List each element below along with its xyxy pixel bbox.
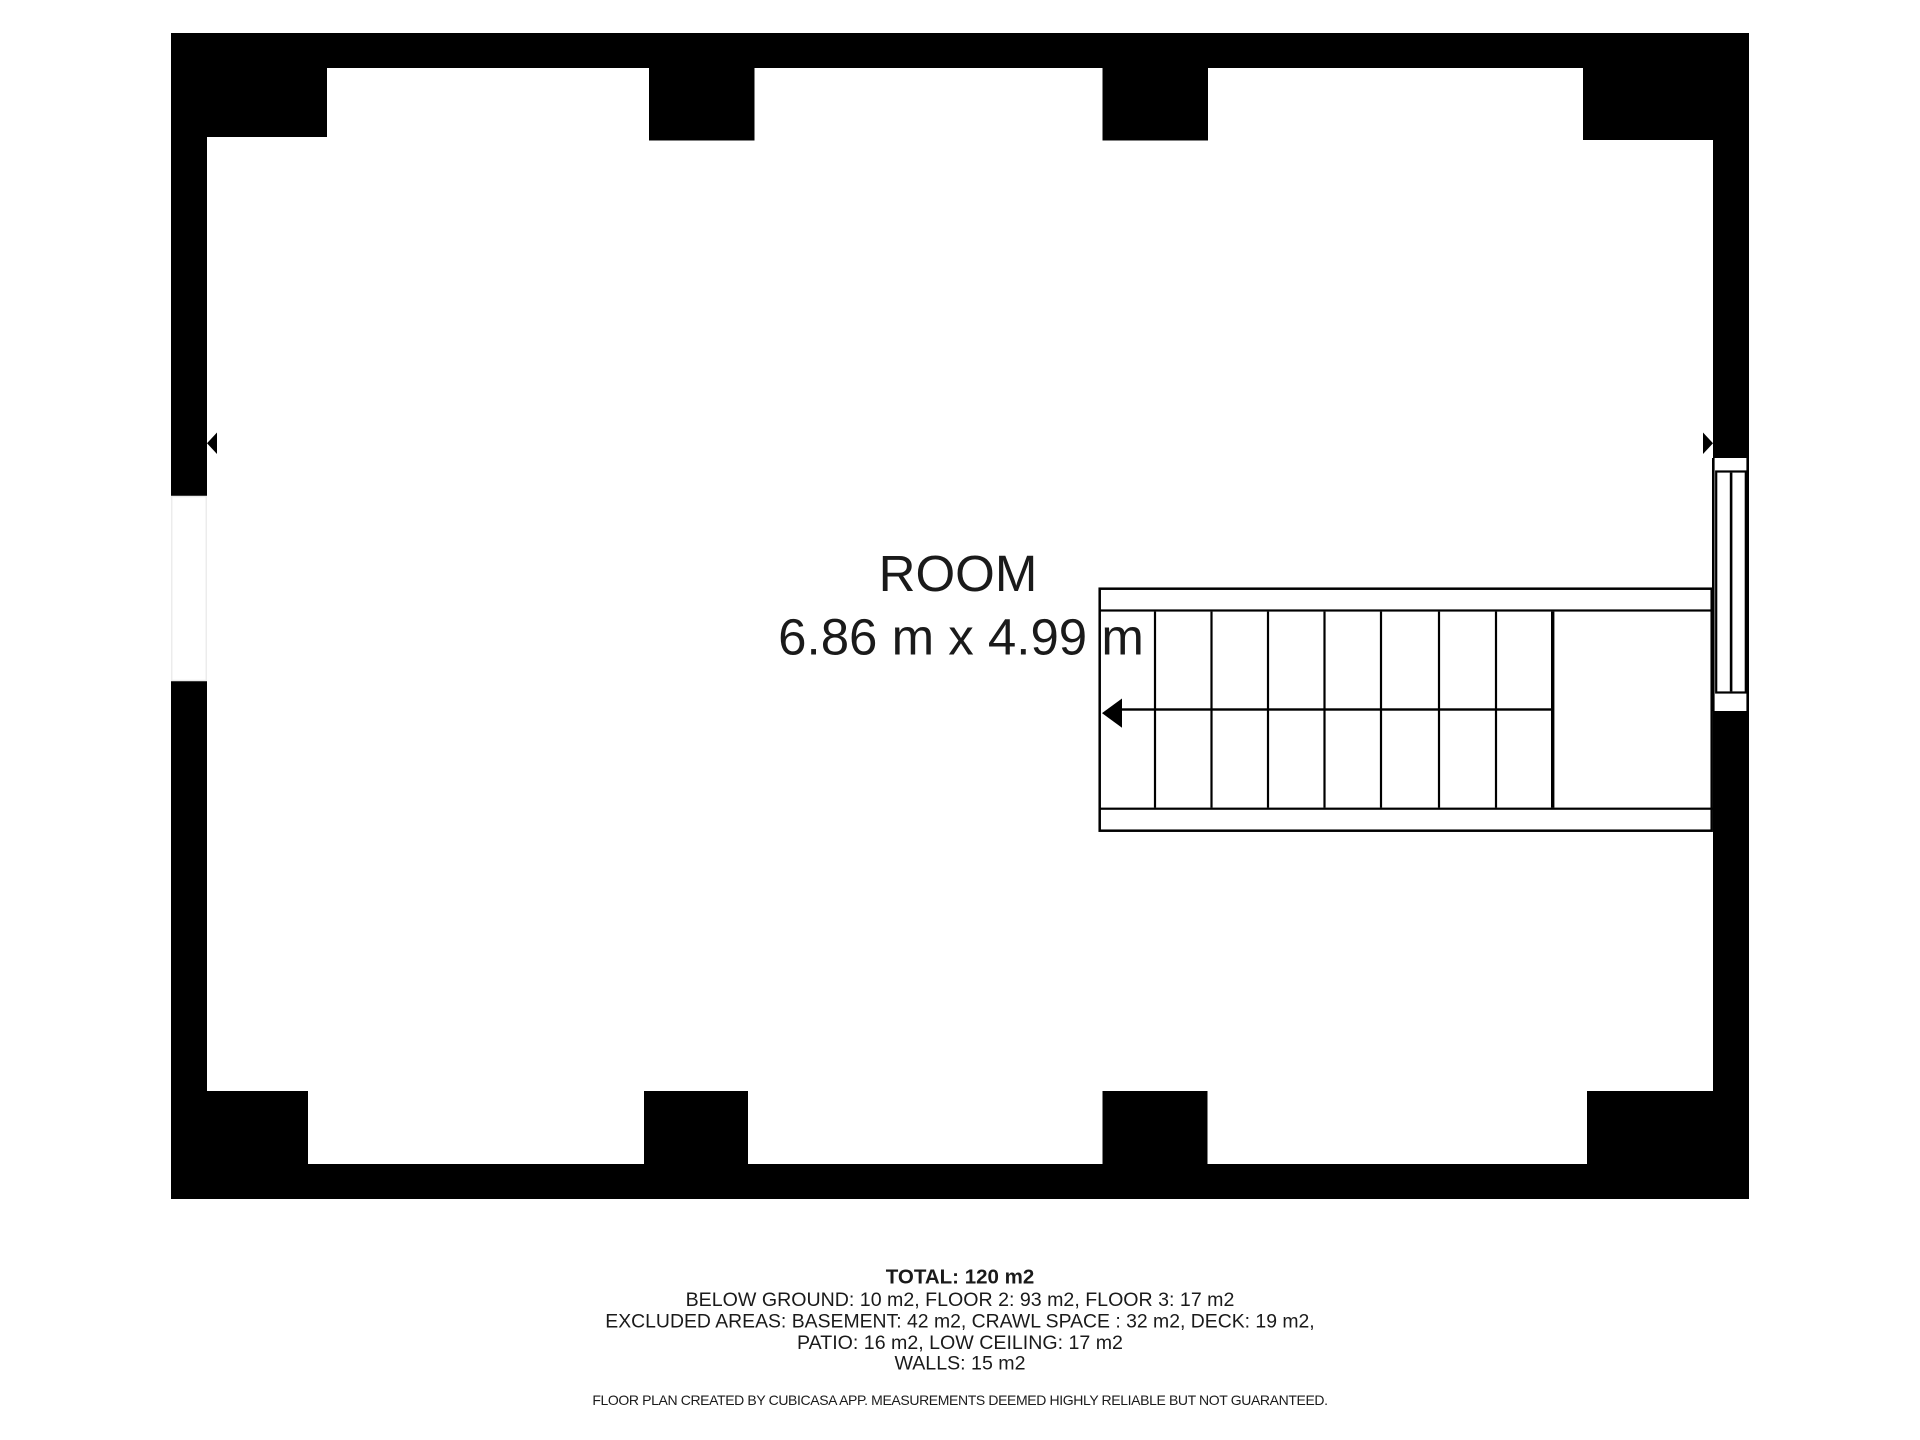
svg-text:TOTAL: 120 m2: TOTAL: 120 m2 bbox=[886, 1265, 1034, 1288]
svg-text:PATIO: 16 m2, LOW CEILING: 17: PATIO: 16 m2, LOW CEILING: 17 m2 bbox=[797, 1332, 1123, 1354]
svg-text:WALLS: 15 m2: WALLS: 15 m2 bbox=[894, 1353, 1025, 1375]
svg-text:FLOOR PLAN CREATED BY CUBICASA: FLOOR PLAN CREATED BY CUBICASA APP. MEAS… bbox=[592, 1392, 1327, 1408]
svg-text:6.86 m x 4.99 m: 6.86 m x 4.99 m bbox=[778, 609, 1144, 666]
svg-text:BELOW GROUND: 10 m2, FLOOR 2:: BELOW GROUND: 10 m2, FLOOR 2: 93 m2, FLO… bbox=[686, 1289, 1235, 1311]
svg-text:EXCLUDED AREAS: BASEMENT: 42 m: EXCLUDED AREAS: BASEMENT: 42 m2, CRAWL S… bbox=[605, 1311, 1314, 1333]
svg-text:ROOM: ROOM bbox=[879, 545, 1038, 602]
